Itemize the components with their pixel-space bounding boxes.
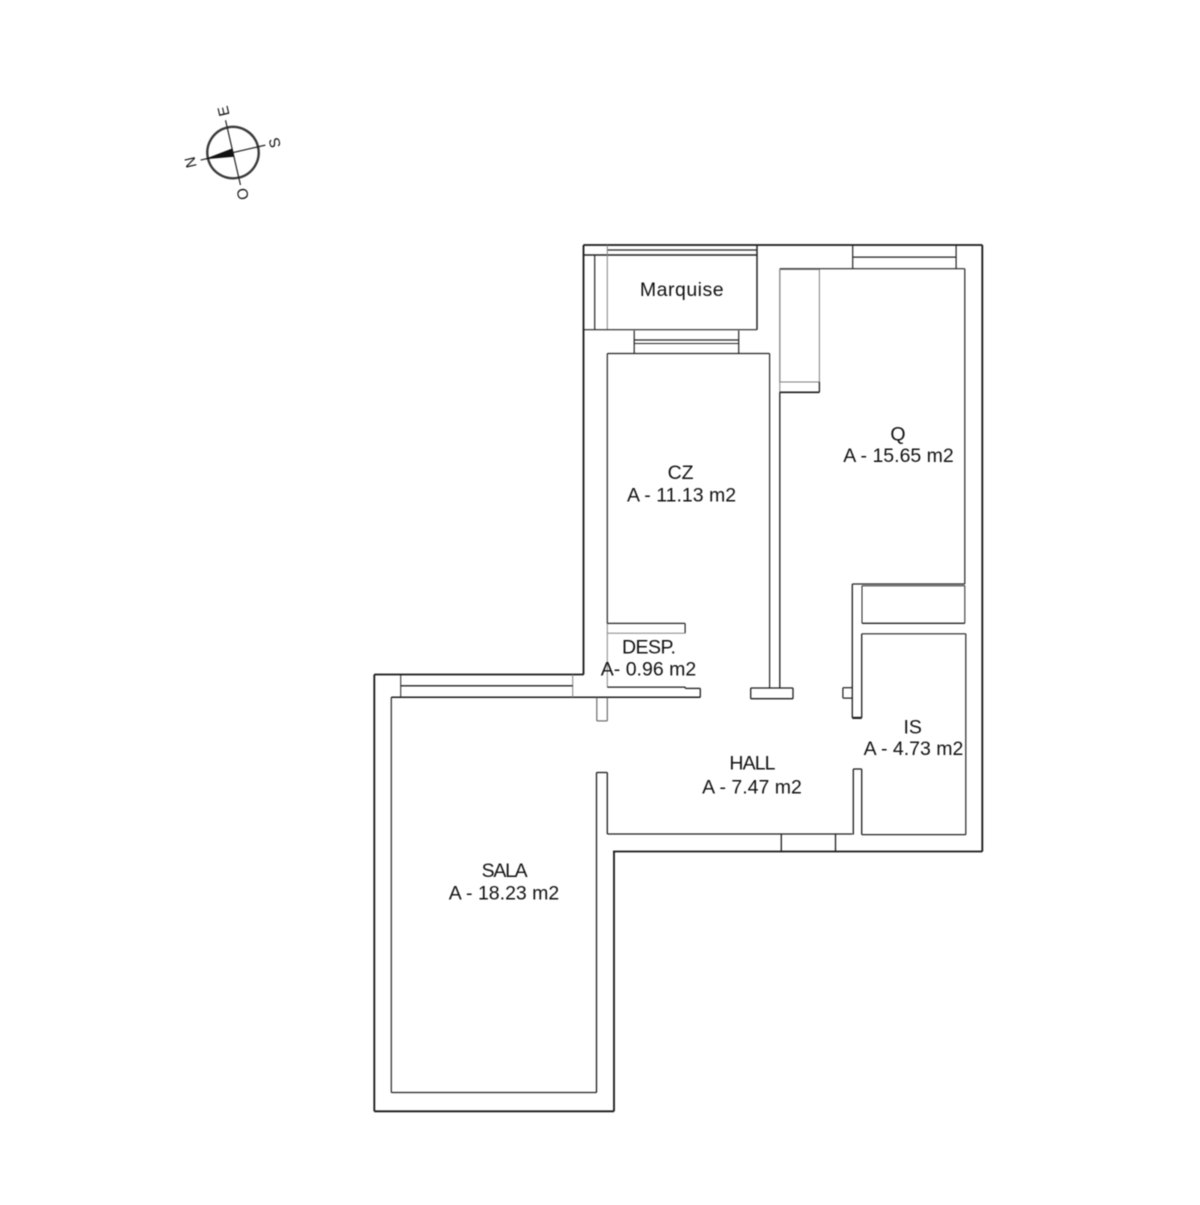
svg-text:A - 18.23 m2: A - 18.23 m2: [449, 883, 560, 905]
svg-text:A - 15.65 m2: A - 15.65 m2: [843, 445, 954, 467]
svg-text:A - 7.47 m2: A - 7.47 m2: [702, 776, 802, 798]
svg-text:IS: IS: [903, 717, 921, 739]
svg-text:HALL: HALL: [729, 752, 775, 774]
svg-text:CZ: CZ: [668, 462, 694, 484]
svg-text:A- 0.96 m2: A- 0.96 m2: [601, 659, 696, 681]
svg-text:SALA: SALA: [482, 860, 528, 882]
svg-text:A - 11.13 m2: A - 11.13 m2: [627, 485, 736, 507]
svg-text:Q: Q: [890, 424, 905, 446]
svg-text:Marquise: Marquise: [640, 279, 724, 301]
svg-text:A - 4.73 m2: A - 4.73 m2: [864, 738, 964, 760]
svg-text:DESP.: DESP.: [622, 637, 676, 659]
